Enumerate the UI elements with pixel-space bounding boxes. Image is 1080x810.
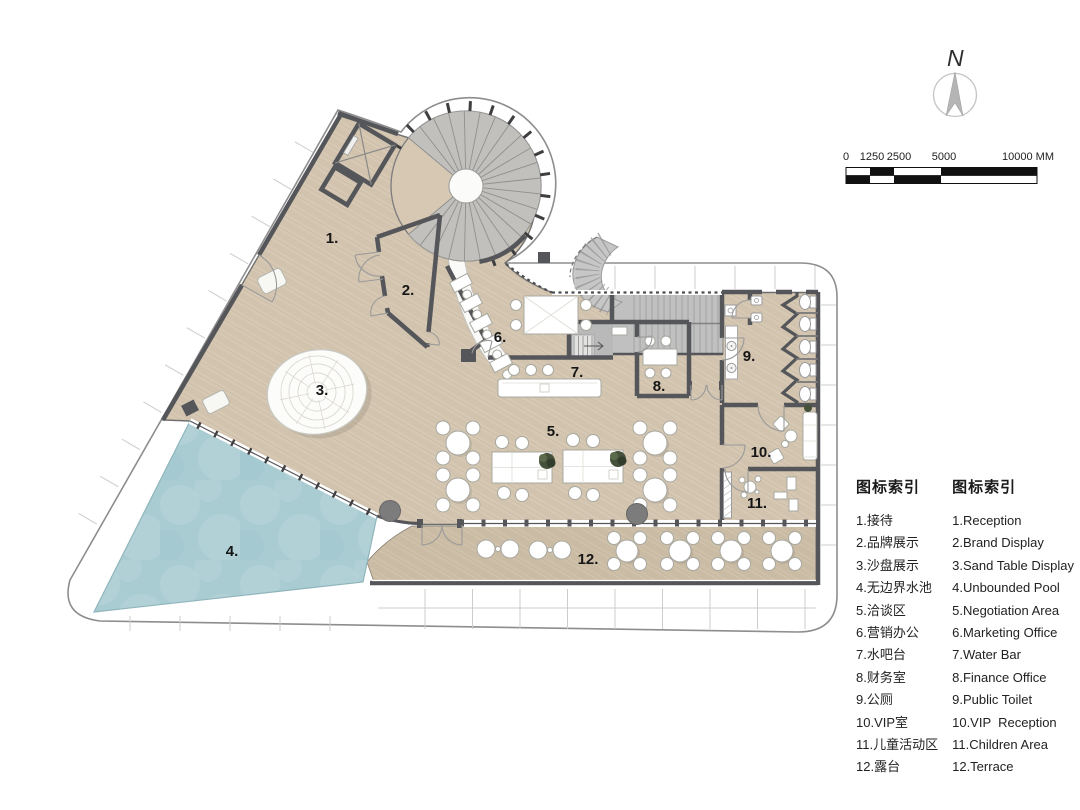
room-label-2: 2. — [402, 282, 415, 299]
toilet-icon — [800, 295, 811, 310]
legend: 图标索引 1.接待 2.品牌展示 3.沙盘展示 4.无边界水池 5.洽谈区 6.… — [856, 476, 1074, 779]
chair — [712, 558, 725, 571]
chair — [661, 532, 674, 545]
legend-item: 4.无边界水池 — [856, 577, 938, 599]
toilet-icon — [800, 387, 811, 402]
chair — [587, 489, 600, 502]
chair — [436, 498, 450, 512]
chair — [511, 300, 522, 311]
mullion — [697, 520, 701, 527]
tile-joint — [187, 328, 205, 339]
legend-item: 3.Sand Table Display — [952, 555, 1074, 577]
tile-joint — [79, 513, 97, 524]
north-arrow: N — [934, 45, 977, 117]
legend-item: 1.接待 — [856, 510, 938, 532]
plant-icon — [539, 454, 547, 462]
mullion — [611, 520, 615, 527]
chair — [498, 487, 511, 500]
facade-tick — [540, 195, 550, 196]
tile-joint — [208, 290, 226, 301]
legend-title-en: 图标索引 — [952, 476, 1074, 497]
legend-item: 11.Children Area — [952, 734, 1074, 756]
legend-item: 10.VIP Reception — [952, 712, 1074, 734]
floor-plan-page: 1. 2. 3. 4. 5. 6. 7. 8. 9. 10. 11. 12. N… — [0, 0, 1080, 810]
terrace-table — [553, 541, 571, 559]
chair — [738, 532, 751, 545]
legend-column-zh: 图标索引 1.接待 2.品牌展示 3.沙盘展示 4.无边界水池 5.洽谈区 6.… — [856, 476, 938, 779]
mullion — [482, 520, 486, 527]
play-mat — [787, 477, 796, 490]
mullion — [589, 520, 593, 527]
chair — [663, 498, 677, 512]
legend-title-zh: 图标索引 — [856, 476, 938, 497]
room-label-7: 7. — [571, 364, 584, 381]
chair — [569, 487, 582, 500]
chair — [763, 532, 776, 545]
mullion — [654, 520, 658, 527]
room-label-1: 1. — [326, 230, 339, 247]
sofa — [803, 412, 817, 460]
legend-item: 2.Brand Display — [952, 532, 1074, 554]
terrace-table — [496, 547, 501, 552]
facade-tick — [470, 101, 471, 111]
desk — [643, 349, 677, 365]
legend-item: 9.公厕 — [856, 689, 938, 711]
chair — [466, 498, 480, 512]
chair — [645, 368, 655, 378]
chair — [663, 421, 677, 435]
chair — [509, 365, 520, 376]
legend-item: 12.Terrace — [952, 756, 1074, 778]
toilet-icon — [800, 363, 811, 378]
room-label-5: 5. — [547, 423, 560, 440]
legend-item: 3.沙盘展示 — [856, 555, 938, 577]
terrace-table — [501, 540, 519, 558]
legend-item: 2.品牌展示 — [856, 532, 938, 554]
column — [627, 504, 648, 525]
room-label-12: 12. — [578, 551, 599, 568]
chair — [496, 436, 509, 449]
tile-joint — [143, 402, 161, 413]
scale-tick: 10000 MM — [1002, 151, 1054, 163]
plant-icon — [610, 452, 618, 460]
legend-item: 7.水吧台 — [856, 644, 938, 666]
chair — [436, 421, 450, 435]
plant-icon — [547, 459, 556, 468]
terrace-table — [529, 541, 547, 559]
chair — [661, 558, 674, 571]
mullion — [525, 520, 529, 527]
chair — [581, 320, 592, 331]
legend-item: 10.VIP室 — [856, 712, 938, 734]
room-label-8: 8. — [653, 378, 666, 395]
round-table — [616, 540, 638, 562]
chair — [466, 451, 480, 465]
chair — [543, 365, 554, 376]
legend-item: 11.儿童活动区 — [856, 734, 938, 756]
mullion — [804, 520, 808, 527]
mullion — [718, 520, 722, 527]
chair — [687, 558, 700, 571]
terrace-table — [548, 548, 553, 553]
round-table — [446, 431, 470, 455]
round-table — [720, 540, 742, 562]
chair — [789, 532, 802, 545]
legend-item: 5.洽谈区 — [856, 600, 938, 622]
round-table — [446, 478, 470, 502]
legend-item: 7.Water Bar — [952, 644, 1074, 666]
facade-tick — [540, 173, 550, 174]
column — [380, 501, 401, 522]
chair — [466, 468, 480, 482]
legend-item: 8.财务室 — [856, 667, 938, 689]
chair — [661, 336, 671, 346]
chair — [633, 451, 647, 465]
chair — [608, 532, 621, 545]
terrace-table — [477, 540, 495, 558]
chair — [634, 558, 647, 571]
play-mat — [789, 499, 798, 511]
chair — [436, 468, 450, 482]
chair — [633, 421, 647, 435]
chair — [661, 368, 671, 378]
chair — [587, 435, 600, 448]
armchair — [785, 430, 797, 442]
chair — [738, 558, 751, 571]
mullion — [568, 520, 572, 527]
chair — [516, 489, 529, 502]
chair — [739, 477, 745, 483]
mullion — [761, 520, 765, 527]
sink-icon — [731, 345, 733, 347]
legend-item: 6.营销办公 — [856, 622, 938, 644]
plant-icon — [618, 457, 627, 466]
chair — [663, 468, 677, 482]
room-label-3: 3. — [316, 382, 329, 399]
chair — [634, 532, 647, 545]
legend-item: 1.Reception — [952, 510, 1074, 532]
legend-item: 6.Marketing Office — [952, 622, 1074, 644]
round-table — [643, 431, 667, 455]
chair — [663, 451, 677, 465]
tile-joint — [122, 439, 140, 450]
chair — [466, 421, 480, 435]
side-table — [612, 327, 627, 335]
legend-item: 8.Finance Office — [952, 667, 1074, 689]
chair — [633, 468, 647, 482]
round-table — [771, 540, 793, 562]
urinal-icon — [751, 296, 762, 305]
mop-sink — [725, 305, 736, 316]
north-label: N — [947, 45, 964, 71]
chair — [581, 300, 592, 311]
room-label-11: 11. — [747, 495, 767, 512]
round-table — [669, 540, 691, 562]
urinal-icon — [751, 313, 762, 322]
chair — [511, 320, 522, 331]
chair — [712, 532, 725, 545]
sink-icon — [731, 367, 733, 369]
kids-table — [744, 481, 756, 493]
plant-icon — [804, 404, 812, 412]
room-label-4: 4. — [226, 543, 239, 560]
mullion — [546, 520, 550, 527]
room-label-9: 9. — [743, 348, 756, 365]
toy — [755, 490, 759, 494]
legend-item: 5.Negotiation Area — [952, 600, 1074, 622]
scale-tick: 1250 — [860, 151, 884, 163]
legend-item: 12.露台 — [856, 756, 938, 778]
scale-bar: 0 1250 2500 5000 10000 MM — [843, 151, 1054, 184]
chair — [755, 476, 761, 482]
round-table — [643, 478, 667, 502]
legend-item: 4.Unbounded Pool — [952, 577, 1074, 599]
scale-tick: 0 — [843, 151, 849, 163]
chair — [516, 437, 529, 450]
tile-joint — [273, 179, 291, 190]
side-table — [782, 441, 789, 448]
tile-joint — [165, 365, 183, 376]
toilet-icon — [800, 340, 811, 355]
tile-joint — [252, 216, 270, 227]
scale-tick: 5000 — [932, 151, 956, 163]
chair — [567, 434, 580, 447]
mullion — [503, 520, 507, 527]
tile-joint — [100, 476, 118, 487]
room-label-6: 6. — [494, 329, 507, 346]
toilet-icon — [800, 317, 811, 332]
play-mat — [774, 492, 787, 499]
mullion — [675, 520, 679, 527]
tile-joint — [230, 253, 248, 264]
legend-item: 9.Public Toilet — [952, 689, 1074, 711]
chair — [763, 558, 776, 571]
room-label-10: 10. — [751, 444, 772, 461]
chair — [608, 558, 621, 571]
legend-column-en: 图标索引 1.Reception 2.Brand Display 3.Sand … — [952, 476, 1074, 779]
mullion — [740, 520, 744, 527]
tile-joint — [295, 142, 313, 153]
scale-tick: 2500 — [887, 151, 911, 163]
chair — [436, 451, 450, 465]
chair — [789, 558, 802, 571]
chair — [687, 532, 700, 545]
chair — [526, 365, 537, 376]
mullion — [783, 520, 787, 527]
bar-counter — [498, 379, 601, 397]
